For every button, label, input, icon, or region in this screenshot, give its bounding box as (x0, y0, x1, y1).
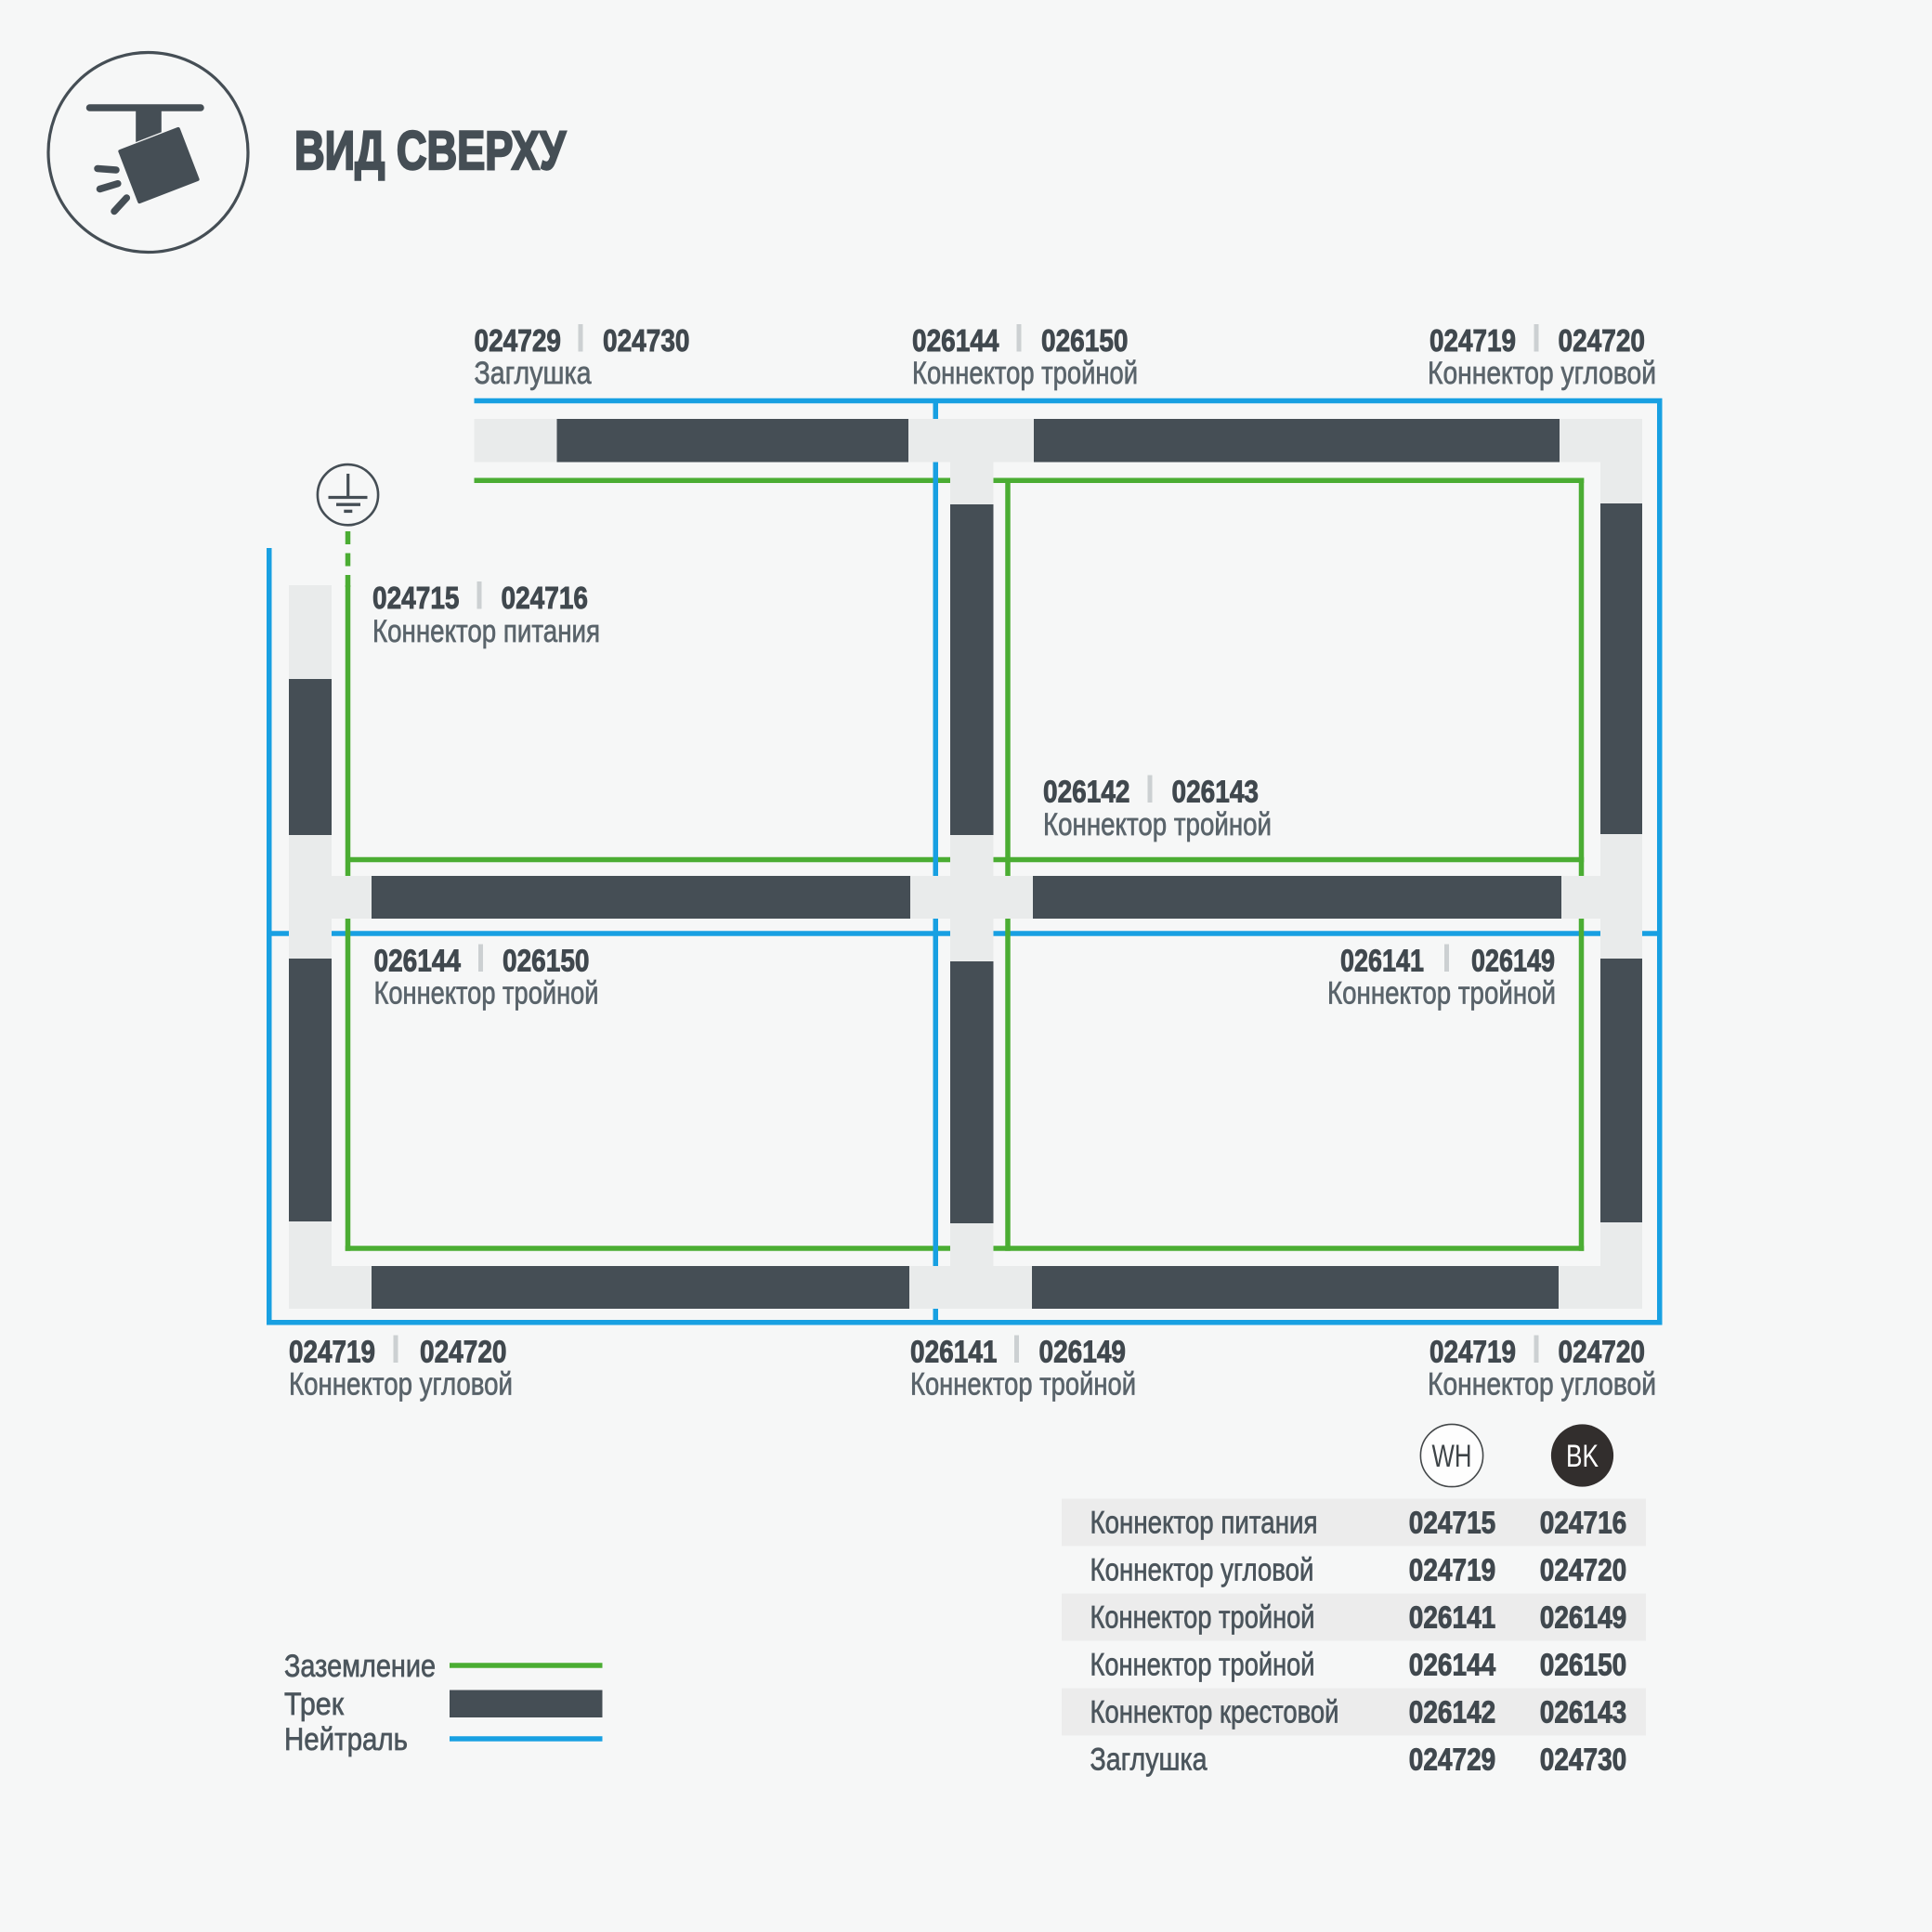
svg-text:026150: 026150 (1041, 324, 1129, 359)
svg-text:026143: 026143 (1172, 776, 1260, 810)
svg-text:026150: 026150 (1540, 1649, 1627, 1683)
svg-text:024716: 024716 (502, 581, 589, 616)
svg-text:Коннектор тройной: Коннектор тройной (1327, 976, 1556, 1012)
svg-text:026141: 026141 (910, 1336, 998, 1370)
svg-text:026144: 026144 (374, 945, 462, 979)
svg-text:Нейтраль: Нейтраль (284, 1722, 408, 1757)
svg-text:026149: 026149 (1540, 1601, 1627, 1636)
svg-text:024719: 024719 (1429, 1336, 1516, 1370)
svg-text:Коннектор питания: Коннектор питания (1090, 1506, 1318, 1541)
svg-text:Заглушка: Заглушка (475, 356, 592, 391)
svg-text:024729: 024729 (475, 324, 562, 359)
svg-text:024720: 024720 (1559, 1336, 1646, 1370)
svg-text:026141: 026141 (1340, 945, 1424, 979)
svg-text:Заглушка: Заглушка (1090, 1743, 1207, 1778)
svg-text:026143: 026143 (1540, 1696, 1627, 1730)
svg-text:Коннектор тройной: Коннектор тройной (912, 356, 1138, 391)
svg-text:024719: 024719 (289, 1336, 375, 1370)
svg-text:024715: 024715 (1409, 1507, 1496, 1541)
svg-text:024729: 024729 (1409, 1743, 1496, 1778)
svg-text:026142: 026142 (1409, 1696, 1496, 1730)
svg-text:024720: 024720 (1559, 324, 1646, 359)
svg-text:026142: 026142 (1043, 776, 1130, 810)
svg-text:Коннектор крестовой: Коннектор крестовой (1090, 1695, 1339, 1730)
svg-text:BK: BK (1566, 1439, 1599, 1474)
svg-text:026150: 026150 (503, 945, 590, 979)
svg-text:Коннектор тройной: Коннектор тройной (910, 1367, 1136, 1403)
svg-text:Коннектор угловой: Коннектор угловой (1428, 1367, 1656, 1403)
svg-text:Коннектор угловой: Коннектор угловой (1428, 356, 1656, 391)
svg-text:024730: 024730 (1540, 1743, 1627, 1778)
svg-text:026141: 026141 (1409, 1601, 1496, 1636)
svg-text:026149: 026149 (1039, 1336, 1127, 1370)
svg-text:Коннектор угловой: Коннектор угловой (289, 1367, 513, 1403)
svg-text:026149: 026149 (1471, 945, 1555, 979)
svg-text:Коннектор тройной: Коннектор тройной (1043, 807, 1272, 842)
svg-text:WH: WH (1432, 1439, 1472, 1474)
svg-text:Коннектор питания: Коннектор питания (372, 614, 600, 649)
svg-text:024720: 024720 (420, 1336, 507, 1370)
svg-text:024719: 024719 (1409, 1554, 1496, 1588)
svg-text:Трек: Трек (284, 1687, 345, 1722)
svg-text:Заземление: Заземление (284, 1649, 436, 1684)
svg-text:Коннектор тройной: Коннектор тройной (1090, 1600, 1315, 1636)
svg-text:Коннектор тройной: Коннектор тройной (1090, 1648, 1315, 1683)
svg-text:024730: 024730 (603, 324, 690, 359)
svg-text:024720: 024720 (1540, 1554, 1627, 1588)
svg-text:Коннектор угловой: Коннектор угловой (1090, 1553, 1314, 1588)
svg-text:024719: 024719 (1429, 324, 1516, 359)
svg-text:ВИД СВЕРХУ: ВИД СВЕРХУ (294, 121, 567, 181)
svg-text:024715: 024715 (372, 581, 460, 616)
svg-text:026144: 026144 (912, 324, 999, 359)
svg-text:024716: 024716 (1540, 1507, 1627, 1541)
svg-text:026144: 026144 (1409, 1649, 1496, 1683)
svg-text:Коннектор тройной: Коннектор тройной (374, 976, 599, 1012)
